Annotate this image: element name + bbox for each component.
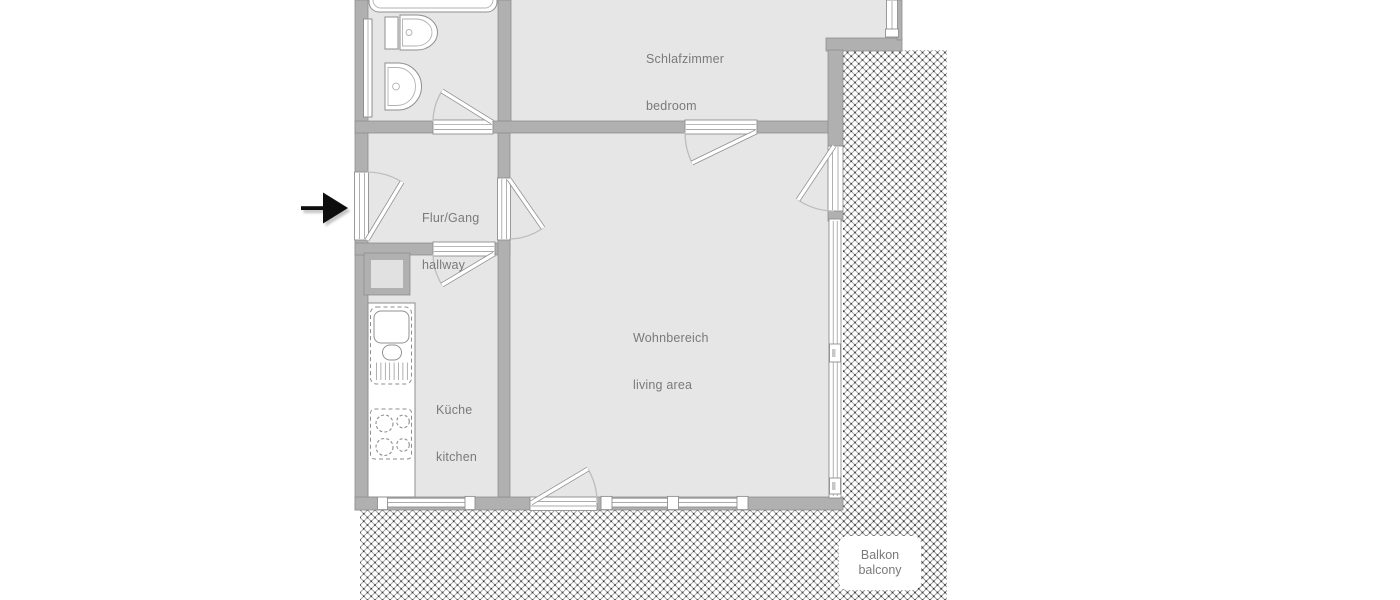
room-label-balcony-de: Balkon xyxy=(861,548,899,564)
room-label-hallway-de: Flur/Gang xyxy=(422,211,479,227)
room-label-bedroom-de: Schlafzimmer xyxy=(646,52,724,68)
toilet-icon xyxy=(385,15,438,50)
balcony-glass-front xyxy=(829,219,841,498)
room-label-kitchen-en: kitchen xyxy=(436,450,477,466)
room-label-balcony-en: balcony xyxy=(858,563,901,579)
room-label-living-area-en: living area xyxy=(633,378,709,394)
floor-plan: Schlafzimmer bedroom Flur/Gang hallway W… xyxy=(0,0,1400,600)
room-label-living-area-de: Wohnbereich xyxy=(633,331,709,347)
room-label-kitchen: Küche kitchen xyxy=(436,372,477,496)
bedroom-window xyxy=(886,0,899,37)
room-label-bedroom-en: bedroom xyxy=(646,99,724,115)
room-label-kitchen-de: Küche xyxy=(436,403,477,419)
entrance-arrow-icon xyxy=(301,193,351,227)
room-label-bedroom: Schlafzimmer bedroom xyxy=(646,21,724,145)
room-label-hallway: Flur/Gang hallway xyxy=(422,180,479,304)
wall-duct xyxy=(364,19,373,117)
kitchen-counter-icon xyxy=(368,303,415,497)
bathtub-icon xyxy=(369,0,497,12)
room-label-balcony: Balkon balcony xyxy=(839,536,921,590)
room-label-hallway-en: hallway xyxy=(422,258,479,274)
room-label-living-area: Wohnbereich living area xyxy=(633,300,709,424)
